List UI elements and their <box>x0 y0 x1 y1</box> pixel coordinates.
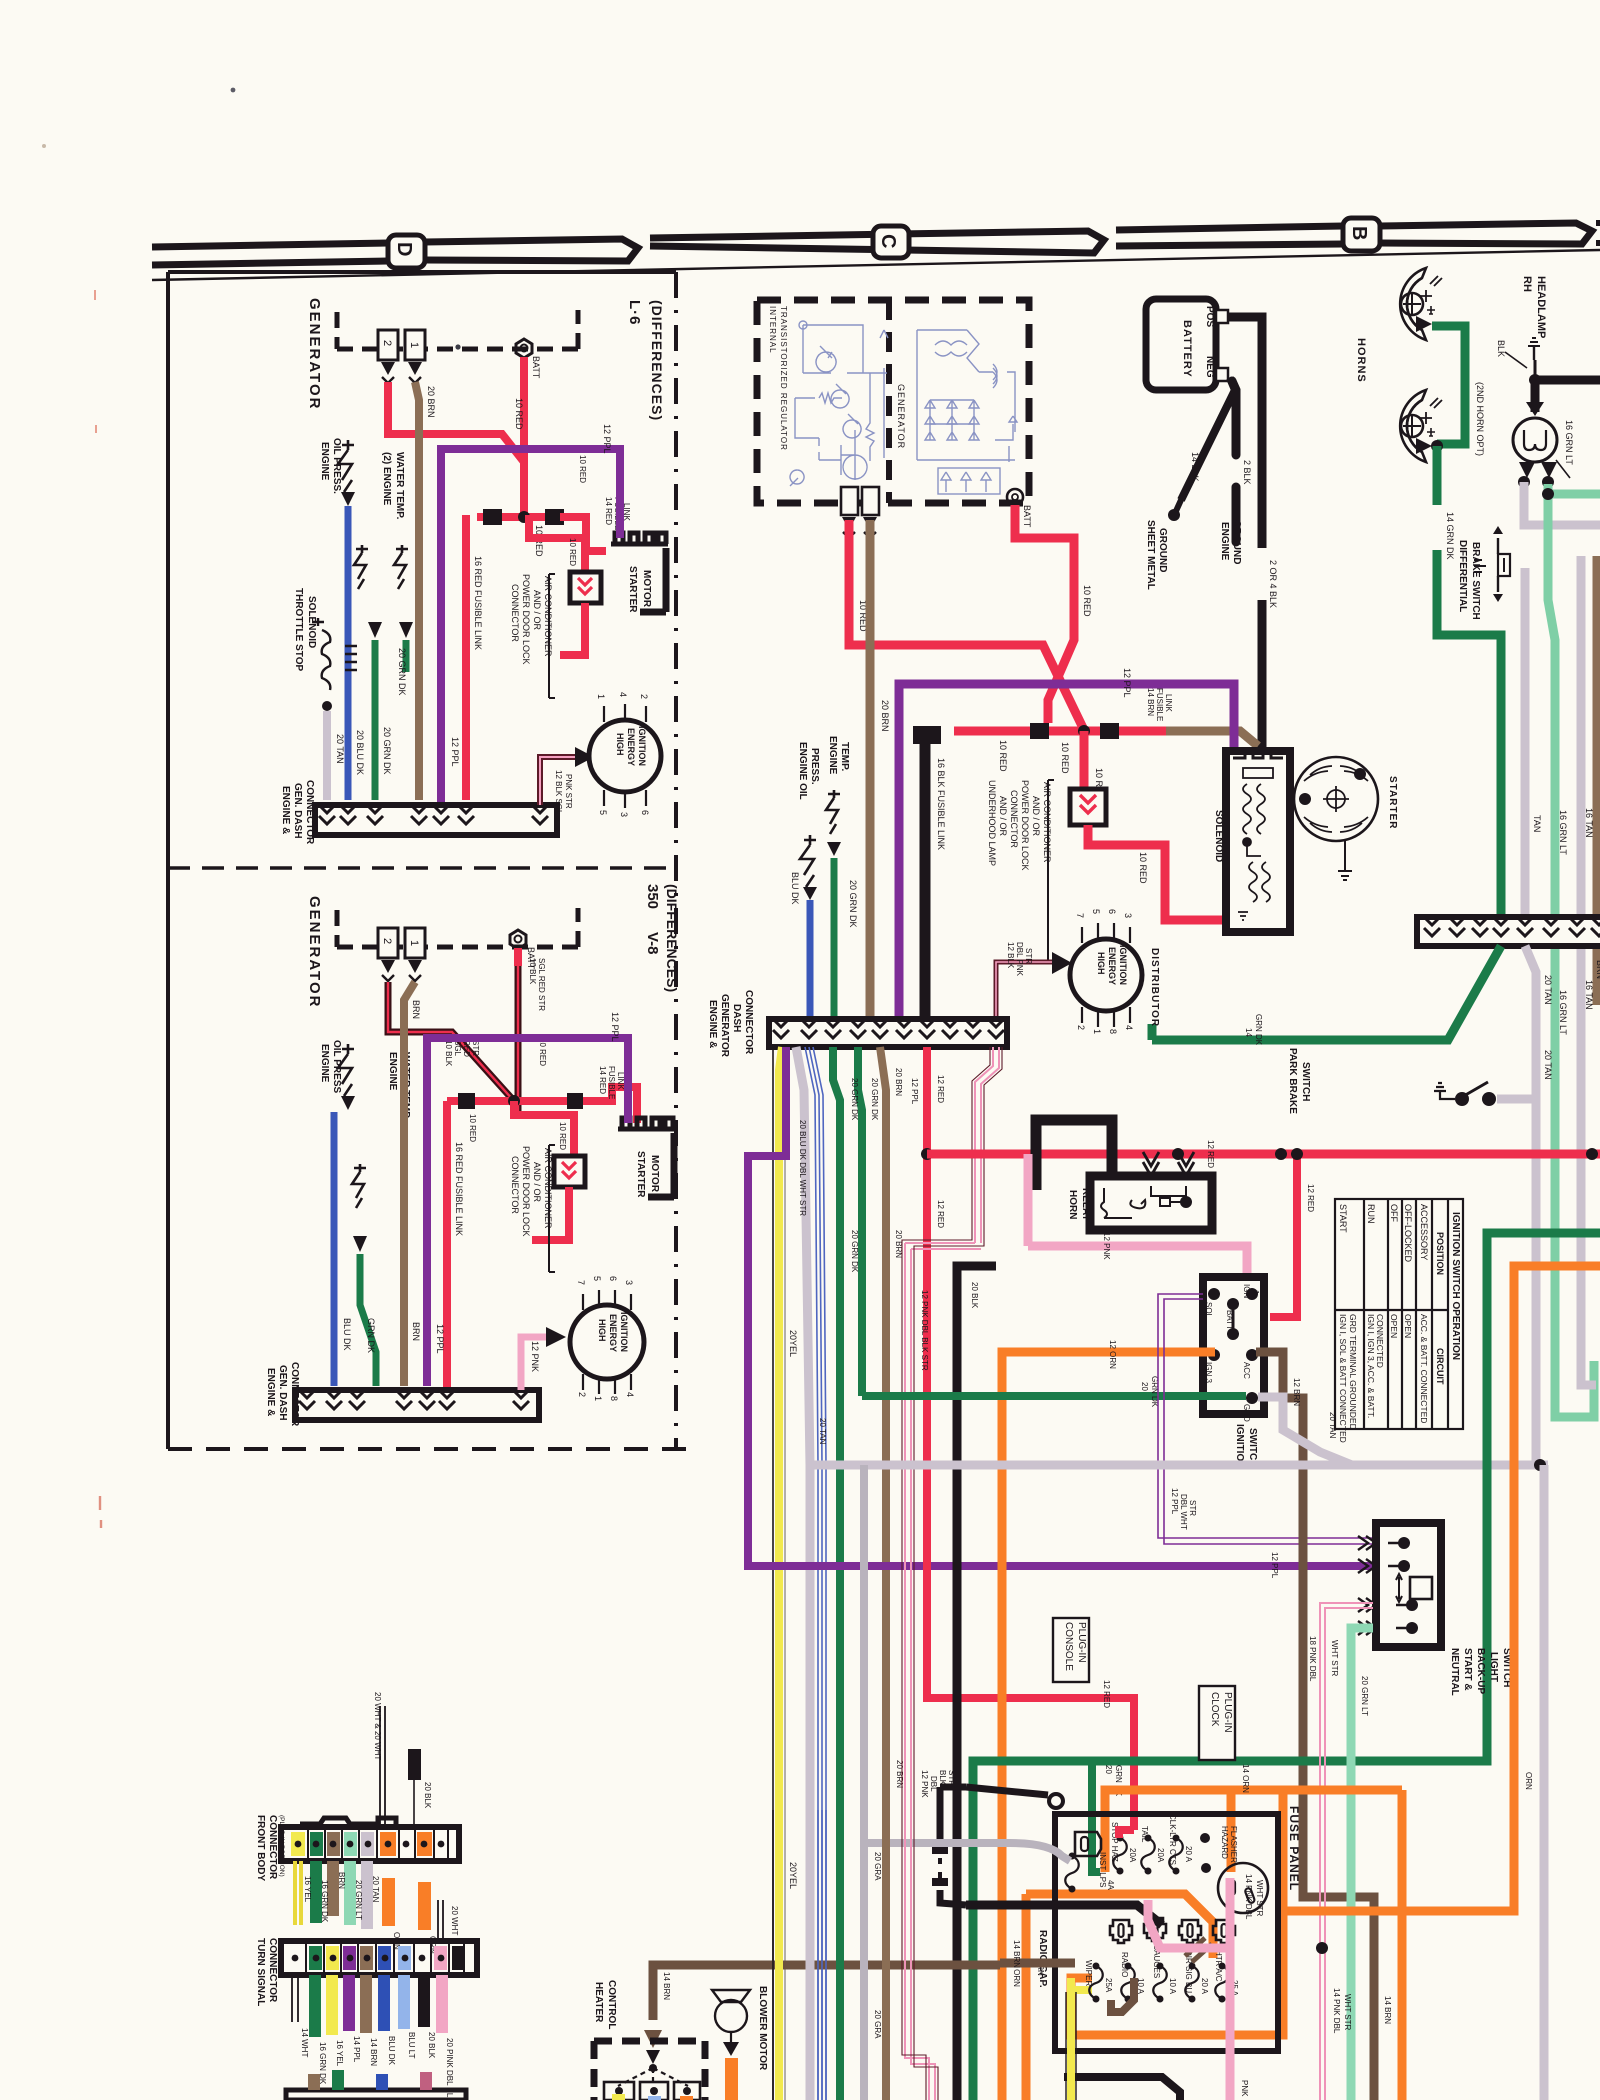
svg-text:18 PNK DBL: 18 PNK DBL <box>1308 1636 1317 1682</box>
svg-text:RUN: RUN <box>1366 1204 1376 1224</box>
svg-text:DIR SIG BU: DIR SIG BU <box>1184 1950 1193 1993</box>
svg-text:14 PNK DBL: 14 PNK DBL <box>1332 1988 1341 2034</box>
svg-text:POWER DOOR LOCK: POWER DOOR LOCK <box>1020 780 1030 871</box>
svg-text:PRESS.: PRESS. <box>809 748 820 785</box>
svg-text:20 A: 20 A <box>1200 1978 1209 1995</box>
svg-text:L·6: L·6 <box>626 300 643 326</box>
svg-text:STARTER: STARTER <box>1387 776 1398 829</box>
svg-text:TRANSISTORIZED REGULATOR: TRANSISTORIZED REGULATOR <box>779 306 788 451</box>
svg-text:8: 8 <box>609 1396 619 1401</box>
svg-text:INST LPS: INST LPS <box>1098 1852 1107 1887</box>
svg-text:16 RED FUSIBLE LINK: 16 RED FUSIBLE LINK <box>473 556 483 650</box>
svg-text:GRN DK: GRN DK <box>1254 1014 1263 1046</box>
svg-text:HTR A/C: HTR A/C <box>1214 1950 1223 1982</box>
svg-text:GROUND: GROUND <box>1157 528 1168 572</box>
svg-text:14 RED: 14 RED <box>598 1066 607 1094</box>
svg-text:GEN. DASH: GEN. DASH <box>292 783 303 839</box>
svg-text:BRN: BRN <box>411 1322 421 1341</box>
svg-text:16 BLK FUSIBLE LINK: 16 BLK FUSIBLE LINK <box>936 758 946 850</box>
svg-text:20YEL: 20YEL <box>788 1330 798 1357</box>
svg-text:(2ND HORN OPT): (2ND HORN OPT) <box>1475 382 1485 456</box>
svg-text:12 PPL: 12 PPL <box>910 1078 919 1105</box>
svg-text:2: 2 <box>1076 1025 1086 1030</box>
svg-text:PNK: PNK <box>1240 2080 1249 2097</box>
svg-text:20 BRN: 20 BRN <box>894 1068 903 1096</box>
svg-text:20: 20 <box>1104 1765 1113 1774</box>
svg-text:12 RED: 12 RED <box>936 1075 945 1103</box>
svg-text:TEMP.: TEMP. <box>839 742 850 771</box>
svg-text:ENGINE OIL: ENGINE OIL <box>797 742 808 800</box>
svg-text:BLK: BLK <box>1496 340 1506 357</box>
svg-text:BRN: BRN <box>411 1000 421 1019</box>
svg-text:25A: 25A <box>1104 1978 1113 1993</box>
svg-text:2: 2 <box>639 694 649 699</box>
svg-text:14 BRN: 14 BRN <box>1383 1996 1392 2024</box>
svg-text:FUSIBLE: FUSIBLE <box>1155 688 1164 721</box>
svg-text:350: 350 <box>644 884 661 909</box>
svg-text:20 GRN DK: 20 GRN DK <box>397 648 407 696</box>
svg-text:14 WHT: 14 WHT <box>300 2028 309 2057</box>
svg-text:WIPER: WIPER <box>1084 1960 1093 1986</box>
svg-text:20A: 20A <box>1128 1848 1137 1863</box>
svg-text:SHEET METAL: SHEET METAL <box>1145 520 1156 590</box>
svg-text:CONNECTOR: CONNECTOR <box>289 1362 300 1427</box>
svg-text:CONNECTED: CONNECTED <box>1375 1314 1385 1368</box>
svg-text:BATT: BATT <box>531 356 541 379</box>
svg-text:PLUG-IN: PLUG-IN <box>1222 1692 1233 1733</box>
svg-text:INTERNAL: INTERNAL <box>768 306 777 354</box>
svg-text:12 RED: 12 RED <box>1206 1140 1215 1168</box>
svg-text:7: 7 <box>576 1280 586 1285</box>
svg-text:20 WHT: 20 WHT <box>450 1906 459 1935</box>
svg-text:RH: RH <box>1521 276 1533 292</box>
svg-text:12 PNK: 12 PNK <box>1102 1232 1111 1260</box>
svg-text:1: 1 <box>596 694 606 699</box>
svg-text:12 PPL: 12 PPL <box>1270 1552 1279 1579</box>
svg-text:5: 5 <box>1091 909 1101 914</box>
svg-text:12 RED: 12 RED <box>1102 1680 1111 1708</box>
svg-text:STR: STR <box>471 1040 480 1056</box>
svg-text:1: 1 <box>408 342 420 348</box>
svg-text:20 BLU DK: 20 BLU DK <box>355 730 365 775</box>
svg-text:STR: STR <box>1188 1500 1197 1516</box>
svg-text:IGN I, SOL & BATT CONNECTED: IGN I, SOL & BATT CONNECTED <box>1338 1314 1348 1443</box>
svg-text:BACK-UP: BACK-UP <box>1475 1648 1486 1694</box>
svg-text:20 TAN: 20 TAN <box>1543 1050 1553 1080</box>
svg-text:14 ORN: 14 ORN <box>1241 1764 1250 1793</box>
svg-text:20 BLK: 20 BLK <box>423 1782 432 1809</box>
svg-text:CLK-LTR CTS: CLK-LTR CTS <box>1168 1814 1177 1865</box>
svg-text:BLU DK: BLU DK <box>387 2036 396 2066</box>
svg-text:4: 4 <box>625 1392 635 1397</box>
svg-text:DIFFERENTIAL: DIFFERENTIAL <box>1457 540 1468 612</box>
svg-text:14 PPL: 14 PPL <box>352 2036 361 2063</box>
svg-text:16 YEL: 16 YEL <box>303 1876 312 1903</box>
svg-text:14 RED: 14 RED <box>604 497 613 525</box>
svg-text:FUSE PANEL: FUSE PANEL <box>1287 1806 1301 1891</box>
svg-text:IGN I, IGN 3, ACC. & BATT.: IGN I, IGN 3, ACC. & BATT. <box>1366 1314 1376 1418</box>
svg-text:ENGINE &: ENGINE & <box>707 1000 718 1048</box>
svg-text:12 PPL: 12 PPL <box>1122 668 1132 698</box>
svg-text:IGNITION SWITCH OPERATION: IGNITION SWITCH OPERATION <box>1450 1212 1461 1360</box>
svg-text:MOTOR: MOTOR <box>641 570 652 608</box>
svg-text:HIGH: HIGH <box>597 1319 607 1342</box>
svg-text:20 TAN: 20 TAN <box>818 1418 827 1445</box>
svg-text:14 BRN: 14 BRN <box>662 1972 671 2000</box>
svg-text:16 GRN LT: 16 GRN LT <box>1564 420 1574 465</box>
svg-text:V-8: V-8 <box>644 932 661 955</box>
svg-text:HEADLAMP: HEADLAMP <box>1535 276 1547 338</box>
svg-text:14 BRN: 14 BRN <box>1146 688 1155 716</box>
svg-text:SWITCH: SWITCH <box>1300 1062 1311 1101</box>
svg-text:20 BLK: 20 BLK <box>970 1282 979 1309</box>
svg-text:16 GRN LT: 16 GRN LT <box>1558 990 1568 1035</box>
svg-text:20YEL: 20YEL <box>788 1862 798 1889</box>
svg-text:2: 2 <box>381 938 393 944</box>
svg-text:20A: 20A <box>1156 1848 1165 1863</box>
svg-text:10 RED: 10 RED <box>1082 585 1092 617</box>
svg-text:BATT: BATT <box>1225 1310 1234 1330</box>
svg-text:C: C <box>877 234 899 248</box>
svg-text:TAIL: TAIL <box>1140 1826 1149 1843</box>
svg-text:ENGINE: ENGINE <box>827 736 838 775</box>
svg-text:3: 3 <box>624 1280 634 1285</box>
svg-text:GENERATOR: GENERATOR <box>896 384 906 449</box>
svg-text:1: 1 <box>1251 1290 1260 1295</box>
svg-text:GENERATOR: GENERATOR <box>306 298 323 410</box>
svg-text:10 BLK: 10 BLK <box>444 1040 453 1067</box>
svg-text:TAN: TAN <box>1532 815 1542 832</box>
svg-text:20 GRN DK: 20 GRN DK <box>850 1230 859 1273</box>
svg-text:POS: POS <box>1204 306 1215 327</box>
svg-text:10 RED: 10 RED <box>558 1122 567 1150</box>
svg-text:BRN: BRN <box>337 1872 346 1889</box>
svg-text:BLU LT: BLU LT <box>407 2032 416 2059</box>
svg-text:10 RED: 10 RED <box>998 740 1008 772</box>
svg-text:UNDERHOOD LAMP: UNDERHOOD LAMP <box>987 780 997 866</box>
svg-text:10 A: 10 A <box>1168 1978 1177 1995</box>
svg-text:CLOCK: CLOCK <box>1209 1692 1220 1727</box>
svg-text:WHT STR: WHT STR <box>1330 1640 1339 1677</box>
svg-text:AND / OR: AND / OR <box>1031 796 1041 837</box>
svg-text:GROUND: GROUND <box>1231 520 1242 564</box>
svg-text:HIGH: HIGH <box>615 733 625 756</box>
svg-text:14 BRN: 14 BRN <box>369 2038 378 2066</box>
svg-text:ENGINE: ENGINE <box>319 1044 330 1083</box>
svg-text:HORN: HORN <box>1067 1190 1078 1219</box>
svg-text:THROTTLE STOP: THROTTLE STOP <box>293 588 304 671</box>
svg-text:PNK STR: PNK STR <box>564 774 573 809</box>
svg-text:BATT: BATT <box>1022 505 1032 528</box>
svg-text:20 TAN: 20 TAN <box>1328 1412 1337 1439</box>
svg-text:10 RED: 10 RED <box>1060 742 1070 774</box>
svg-text:ENGINE &: ENGINE & <box>280 786 291 834</box>
svg-text:14 GRN DK: 14 GRN DK <box>1445 512 1455 560</box>
svg-text:2 BLK: 2 BLK <box>1242 460 1252 485</box>
svg-text:SGL RED STR: SGL RED STR <box>537 958 546 1011</box>
svg-text:BATTERY: BATTERY <box>1181 320 1193 378</box>
svg-text:20 GRA: 20 GRA <box>873 2010 882 2039</box>
svg-text:AND / OR: AND / OR <box>532 590 542 631</box>
svg-text:STARTER: STARTER <box>635 1151 646 1198</box>
svg-text:10 BLK: 10 BLK <box>528 958 537 985</box>
svg-text:12 PNK: 12 PNK <box>530 1341 540 1372</box>
svg-text:ENGINE &: ENGINE & <box>265 1368 276 1416</box>
svg-text:FLASHER: FLASHER <box>1229 1826 1238 1863</box>
svg-text:20 TAN: 20 TAN <box>335 734 345 764</box>
svg-text:HIGH: HIGH <box>1096 952 1106 975</box>
svg-text:LINK: LINK <box>1164 694 1173 712</box>
svg-text:IGNITION: IGNITION <box>637 726 647 766</box>
svg-text:7: 7 <box>1075 913 1085 918</box>
svg-text:SOLENOID: SOLENOID <box>1213 810 1224 862</box>
svg-text:AND / OR: AND / OR <box>532 1162 542 1203</box>
svg-text:STR: STR <box>1024 948 1033 964</box>
svg-text:12 ORN: 12 ORN <box>1108 1340 1117 1369</box>
svg-text:BRAKE SWITCH: BRAKE SWITCH <box>1470 542 1481 620</box>
svg-text:CONNECTOR: CONNECTOR <box>743 990 754 1055</box>
svg-text:AIR CONDITIONER: AIR CONDITIONER <box>543 1148 553 1229</box>
svg-text:20 TAN: 20 TAN <box>371 1876 380 1903</box>
svg-text:20 WHT & 20 WHT: 20 WHT & 20 WHT <box>373 1692 382 1760</box>
svg-text:5: 5 <box>592 1276 602 1281</box>
svg-text:AIR CONDITIONER: AIR CONDITIONER <box>543 576 553 657</box>
svg-text:6: 6 <box>608 1276 618 1281</box>
svg-text:12 PNK: 12 PNK <box>920 1770 929 1798</box>
svg-text:16 YEL: 16 YEL <box>335 2040 344 2067</box>
svg-text:10 RED: 10 RED <box>1138 852 1148 884</box>
svg-text:12 PPL: 12 PPL <box>1170 1488 1179 1515</box>
svg-text:WHT STR: WHT STR <box>1255 1880 1264 1917</box>
svg-text:12 PNK DBL BLK STR: 12 PNK DBL BLK STR <box>920 1290 929 1371</box>
svg-text:ENGINE: ENGINE <box>319 442 330 481</box>
svg-text:10 RED: 10 RED <box>468 1114 477 1142</box>
svg-text:(PLUG IN PORTION): (PLUG IN PORTION) <box>278 1815 285 1877</box>
svg-text:OIL PRESS: OIL PRESS <box>331 1040 342 1093</box>
svg-text:20 BRN: 20 BRN <box>426 386 436 418</box>
svg-text:ENGINE: ENGINE <box>387 1052 398 1091</box>
svg-text:16 RED FUSIBLE LINK: 16 RED FUSIBLE LINK <box>454 1142 464 1236</box>
svg-text:HAZARD: HAZARD <box>1220 1826 1229 1859</box>
svg-text:20 GRN DK: 20 GRN DK <box>848 880 858 928</box>
svg-text:12 BLK: 12 BLK <box>1006 942 1015 969</box>
svg-text:14: 14 <box>1244 1028 1253 1037</box>
svg-text:20 TAN: 20 TAN <box>1543 975 1553 1005</box>
svg-text:ENGINE: ENGINE <box>1219 522 1230 561</box>
svg-text:POWER DOOR LOCK: POWER DOOR LOCK <box>521 574 531 665</box>
svg-text:CONNECTOR: CONNECTOR <box>267 1815 278 1880</box>
svg-text:TURN SIGNAL: TURN SIGNAL <box>255 1938 266 2006</box>
svg-text:CONSOLE: CONSOLE <box>1063 1622 1074 1671</box>
svg-text:D: D <box>393 242 415 256</box>
svg-text:6: 6 <box>640 810 650 815</box>
svg-text:20 GRN DK: 20 GRN DK <box>850 1078 859 1121</box>
svg-text:5: 5 <box>598 810 608 815</box>
svg-text:20 BLK: 20 BLK <box>427 2032 436 2059</box>
svg-text:20 GRN LT: 20 GRN LT <box>1360 1676 1369 1716</box>
svg-text:10 RED: 10 RED <box>538 1038 547 1066</box>
svg-text:WATER TEMP.: WATER TEMP. <box>394 452 405 520</box>
svg-text:POWER DOOR LOCK: POWER DOOR LOCK <box>521 1146 531 1237</box>
svg-text:16 TAN: 16 TAN <box>1584 980 1594 1010</box>
svg-text:1: 1 <box>408 940 420 946</box>
svg-text:1: 1 <box>1092 1029 1102 1034</box>
svg-text:CONNECTOR: CONNECTOR <box>267 1938 278 2003</box>
svg-text:IGNITION: IGNITION <box>619 1312 629 1352</box>
svg-text:ORN: ORN <box>1524 1772 1533 1790</box>
svg-text:RADIO: RADIO <box>1120 1952 1129 1977</box>
svg-text:20 BRN: 20 BRN <box>880 700 890 732</box>
svg-text:(DIFFERENCES): (DIFFERENCES) <box>664 884 680 992</box>
svg-text:IGN: IGN <box>1242 1284 1251 1298</box>
svg-text:2: 2 <box>381 340 393 346</box>
svg-text:LINK: LINK <box>616 1072 625 1090</box>
svg-text:20 GRN DK: 20 GRN DK <box>382 727 392 775</box>
svg-text:CONNECTOR: CONNECTOR <box>510 584 520 642</box>
svg-text:GRD: GRD <box>1242 1404 1251 1422</box>
svg-text:AIR CONDITIONER: AIR CONDITIONER <box>1042 782 1052 863</box>
svg-text:CIRCUIT: CIRCUIT <box>1435 1348 1445 1385</box>
svg-text:CONNECTOR: CONNECTOR <box>304 780 315 845</box>
svg-text:PLUG-IN: PLUG-IN <box>1076 1622 1087 1663</box>
svg-text:OIL PRESS.: OIL PRESS. <box>331 438 342 494</box>
svg-text:BRN: BRN <box>1595 960 1600 979</box>
svg-text:14 PNK DBL: 14 PNK DBL <box>1244 1874 1253 1920</box>
svg-text:12 PPL: 12 PPL <box>435 1324 445 1354</box>
svg-text:OFF-LOCKED: OFF-LOCKED <box>1403 1204 1413 1263</box>
svg-text:CONTROL: CONTROL <box>606 1980 617 2029</box>
svg-text:SGL: SGL <box>453 1040 462 1057</box>
svg-text:SOL: SOL <box>1204 1302 1213 1319</box>
svg-text:LIGHT: LIGHT <box>1488 1652 1499 1682</box>
svg-text:RELAY: RELAY <box>1080 1188 1091 1221</box>
svg-text:GENERATOR: GENERATOR <box>719 994 730 1058</box>
svg-text:6: 6 <box>1107 909 1117 914</box>
svg-text:3: 3 <box>1123 913 1133 918</box>
svg-text:20 GRA: 20 GRA <box>873 1852 882 1881</box>
svg-text:AND / OR: AND / OR <box>998 796 1008 837</box>
svg-text:DBL PNK: DBL PNK <box>1015 942 1024 977</box>
svg-text:12 PPL: 12 PPL <box>450 737 460 767</box>
svg-text:(DIFFERENCES): (DIFFERENCES) <box>649 300 665 421</box>
svg-text:OPEN: OPEN <box>1403 1314 1413 1338</box>
svg-text:ACCESSORY: ACCESSORY <box>1419 1204 1429 1260</box>
svg-text:PARK BRAKE: PARK BRAKE <box>1287 1048 1298 1114</box>
svg-text:12 RED: 12 RED <box>1306 1184 1315 1212</box>
svg-text:12 BLK SGL: 12 BLK SGL <box>554 770 563 815</box>
svg-text:ENERGY: ENERGY <box>626 728 636 766</box>
svg-text:BLOWER MOTOR: BLOWER MOTOR <box>757 1986 768 2071</box>
svg-text:2: 2 <box>577 1392 587 1397</box>
svg-text:OFF: OFF <box>1389 1204 1399 1222</box>
svg-text:20 BLU DK DBL WHT STR: 20 BLU DK DBL WHT STR <box>798 1120 807 1216</box>
svg-text:GEN. DASH: GEN. DASH <box>277 1365 288 1421</box>
svg-text:16 GRN DK: 16 GRN DK <box>320 1880 329 1923</box>
svg-text:1: 1 <box>593 1396 603 1401</box>
svg-text:DBL WHT: DBL WHT <box>1179 1494 1188 1530</box>
svg-text:10 RED: 10 RED <box>578 455 587 483</box>
svg-text:4A: 4A <box>1106 1880 1115 1890</box>
svg-text:14 BRN: 14 BRN <box>1012 1940 1021 1968</box>
svg-text:DASH: DASH <box>731 1004 742 1032</box>
svg-text:WHT STR: WHT STR <box>1343 1994 1352 2031</box>
svg-text:10 RED: 10 RED <box>514 398 524 430</box>
svg-text:HEATER: HEATER <box>593 1982 604 2023</box>
svg-text:10 RED: 10 RED <box>568 538 577 566</box>
svg-text:OPEN: OPEN <box>1389 1314 1399 1338</box>
svg-text:NEG: NEG <box>1204 356 1215 378</box>
svg-text:MOTOR: MOTOR <box>649 1155 660 1193</box>
svg-text:B: B <box>1348 226 1370 240</box>
svg-text:8: 8 <box>1108 1029 1118 1034</box>
svg-text:(2) ENGINE: (2) ENGINE <box>381 452 392 506</box>
svg-text:BLU DK: BLU DK <box>790 872 800 905</box>
svg-text:FUSIBLE: FUSIBLE <box>607 1066 616 1099</box>
svg-text:DISTRIBUTOR: DISTRIBUTOR <box>1149 948 1160 1027</box>
svg-text:16 GRN LT: 16 GRN LT <box>1558 810 1568 855</box>
svg-text:IGNITION: IGNITION <box>1118 945 1128 985</box>
svg-text:BLU DK: BLU DK <box>342 1318 352 1351</box>
svg-text:ENERGY: ENERGY <box>608 1314 618 1352</box>
svg-text:14 BLK: 14 BLK <box>1190 452 1200 482</box>
svg-text:START: START <box>1338 1204 1348 1233</box>
svg-text:CONNECTOR: CONNECTOR <box>1009 790 1019 848</box>
svg-text:POSITION: POSITION <box>1435 1232 1445 1275</box>
svg-text:20 A: 20 A <box>1184 1846 1193 1863</box>
svg-text:ENERGY: ENERGY <box>1107 947 1117 985</box>
svg-text:12 PPL: 12 PPL <box>610 1012 620 1042</box>
svg-text:20 BRN: 20 BRN <box>895 1760 904 1788</box>
svg-text:NEUTRAL: NEUTRAL <box>1449 1648 1460 1696</box>
svg-text:GENERATOR: GENERATOR <box>306 896 323 1008</box>
svg-text:IGN 3: IGN 3 <box>1204 1362 1213 1383</box>
svg-text:4: 4 <box>1124 1025 1134 1030</box>
svg-text:20 GRN DK: 20 GRN DK <box>870 1078 879 1121</box>
svg-text:GRD TERMINAL GROUNDED: GRD TERMINAL GROUNDED <box>1348 1314 1358 1430</box>
svg-text:STARTER: STARTER <box>627 566 638 613</box>
svg-text:HORNS: HORNS <box>1355 338 1367 383</box>
svg-text:12 PPL: 12 PPL <box>602 424 612 454</box>
svg-text:12 RED: 12 RED <box>936 1200 945 1228</box>
svg-text:START &: START & <box>1462 1648 1473 1691</box>
svg-text:CONNECTOR: CONNECTOR <box>510 1156 520 1214</box>
svg-text:12 BRN: 12 BRN <box>1292 1378 1301 1406</box>
svg-text:BLK: BLK <box>938 1770 947 1786</box>
svg-text:ACC. & BATT. CONNECTED: ACC. & BATT. CONNECTED <box>1419 1314 1429 1423</box>
svg-text:FRONT BODY: FRONT BODY <box>255 1815 266 1881</box>
svg-text:GRN DK: GRN DK <box>366 1318 376 1353</box>
svg-text:2 OR 4 BLK: 2 OR 4 BLK <box>1268 560 1278 608</box>
svg-text:20 GRN LT: 20 GRN LT <box>354 1880 363 1920</box>
svg-text:RED: RED <box>462 1040 471 1057</box>
svg-text:20: 20 <box>1140 1382 1149 1391</box>
svg-text:ACC: ACC <box>1242 1362 1251 1379</box>
svg-text:4: 4 <box>618 692 628 697</box>
svg-text:3: 3 <box>619 812 629 817</box>
